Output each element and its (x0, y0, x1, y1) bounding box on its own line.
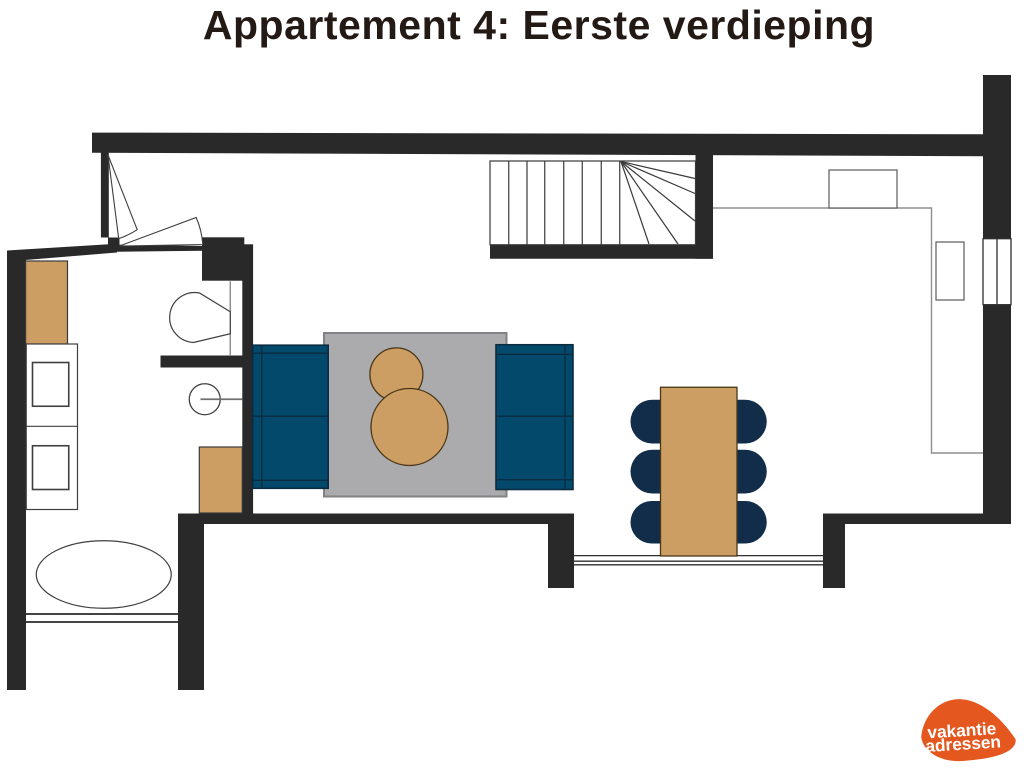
svg-text:Appartement 4: Eerste verdiepi: Appartement 4: Eerste verdieping (203, 2, 875, 48)
